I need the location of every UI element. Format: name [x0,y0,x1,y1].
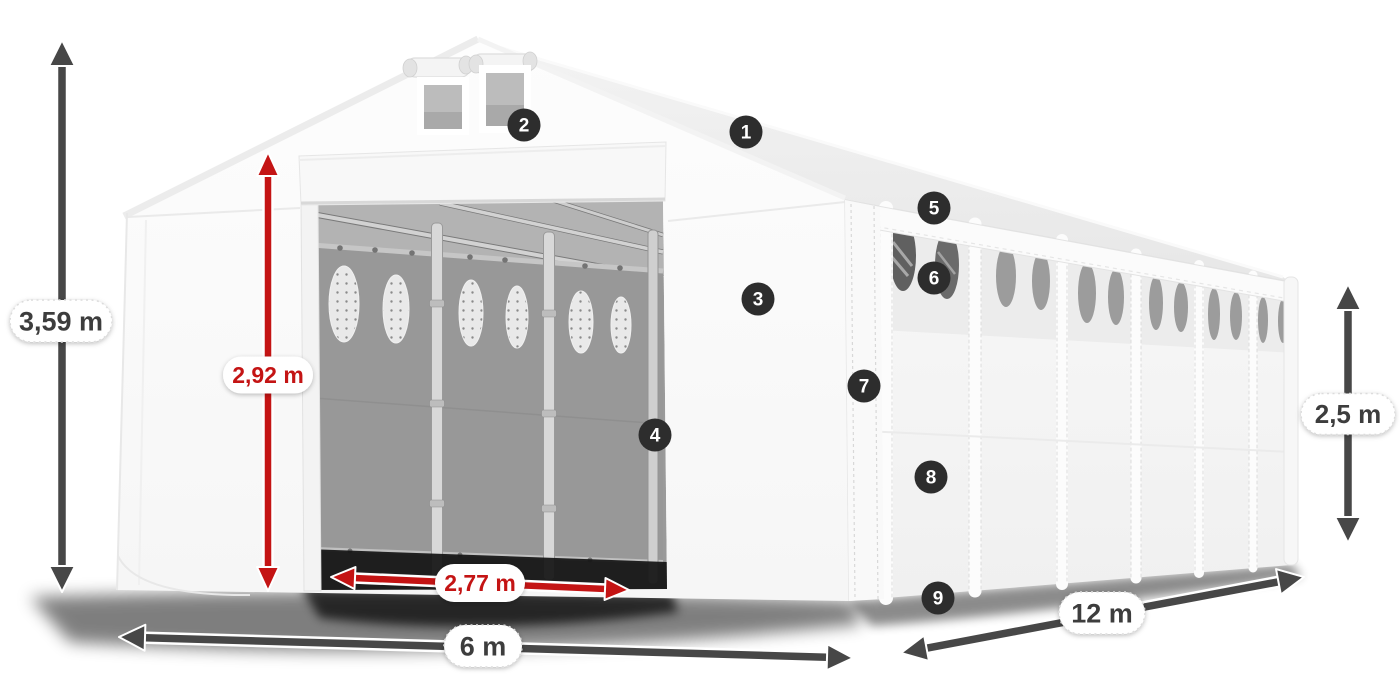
door-frame-left [301,201,321,591]
partition-vent-oval [611,297,631,353]
partition-vent-oval [506,286,528,348]
marker-badge-2: 2 [508,109,541,142]
marker-number: 2 [519,116,530,137]
side-window-oval [1032,252,1050,310]
side-end-cap [1284,277,1298,565]
side-window-oval [1230,292,1242,340]
marker-badge-8: 8 [915,461,948,494]
partition-vent-oval [569,291,593,353]
marker-badge-6: 6 [918,262,951,295]
pole-joint [542,505,557,512]
dimension-label-text: 6 m [460,631,507,661]
dimension-label-text: 2,5 m [1315,399,1382,429]
dimension-label-text: 2,92 m [232,362,304,388]
marker-number: 1 [741,123,752,144]
tent [117,39,1298,601]
marker-badge-4: 4 [639,419,672,452]
pole-joint [430,400,445,407]
marker-number: 7 [859,377,870,398]
marker-number: 3 [753,290,764,311]
side-window-oval [1149,276,1163,330]
partition-vent-oval [383,275,409,343]
marker-badge-7: 7 [848,370,881,403]
marker-number: 9 [933,589,944,610]
marker-badge-1: 1 [730,116,763,149]
side-window-oval [1108,269,1124,325]
tent-dimension-diagram: 3,59 m6 m12 m2,5 m2,92 m2,77 m123456789 [0,0,1400,700]
marker-number: 5 [929,199,940,220]
dimension-arrowhead [1335,284,1361,310]
dimension-arrowhead [827,644,853,670]
pole-joint [542,410,557,417]
interior-pole [648,230,658,584]
vent-window-left-shade [424,112,462,129]
vent-roller-cap [403,59,417,77]
dimension-label-text: 2,77 m [444,570,516,596]
marker-number: 4 [650,426,661,447]
dimension-arrowhead [901,635,929,661]
marker-number: 6 [929,269,940,290]
dimension-label-text: 12 m [1071,598,1133,628]
interior-partition [310,246,663,562]
partition-vent-oval [329,266,359,342]
pole-joint [542,310,557,317]
interior-pole [544,232,555,580]
marker-badge-5: 5 [918,192,951,225]
dimension-arrowhead [1335,517,1361,543]
dimension-side-height: 2,5 m [1301,284,1395,543]
side-window-oval [1208,288,1220,340]
dimension-arrowhead [49,566,75,592]
pole-joint [430,300,445,307]
dimension-label-text: 3,59 m [19,306,103,336]
side-window-oval [1174,282,1188,332]
marker-badge-9: 9 [922,582,955,615]
dimension-arrowhead [1276,569,1304,595]
product-diagram-stage: 3,59 m6 m12 m2,5 m2,92 m2,77 m123456789 [0,0,1400,700]
partition-vent-oval [459,280,483,346]
dimension-total-height: 3,59 m [10,40,112,592]
marker-number: 8 [926,468,937,489]
side-window-oval [996,245,1016,307]
dimension-arrowhead [49,40,75,66]
pole-joint [430,500,445,507]
marker-badge-3: 3 [742,283,775,316]
side-window-oval [1258,297,1268,343]
door-opening-interior [306,199,667,591]
side-window-oval [1078,263,1096,323]
